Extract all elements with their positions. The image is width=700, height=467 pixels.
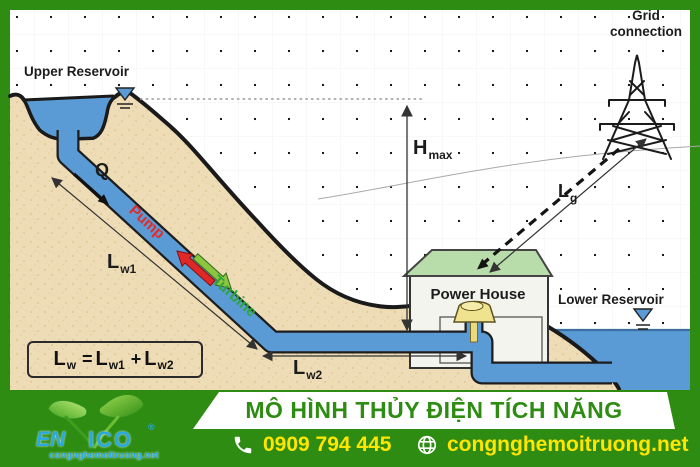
phone-number: 0909 794 445 xyxy=(263,433,391,457)
globe-icon xyxy=(416,434,438,456)
website-url: congnghemoitruong.net xyxy=(447,433,688,457)
upper-reservoir-label: Upper Reservoir xyxy=(24,64,129,80)
website-contact: congnghemoitruong.net xyxy=(416,433,688,457)
hmax-label: Hmax xyxy=(413,137,452,160)
grid-connection-label-line1: Grid xyxy=(596,8,696,24)
banner-title: MÔ HÌNH THỦY ĐIỆN TÍCH NĂNG xyxy=(245,397,622,424)
logo-registered-mark: ® xyxy=(148,422,155,432)
lower-reservoir-label: Lower Reservoir xyxy=(558,292,664,308)
grid-connection-label: Grid connection xyxy=(596,8,696,39)
leaf-icon xyxy=(48,400,87,419)
power-house-label: Power House xyxy=(408,286,548,303)
leaf-icon xyxy=(99,394,144,417)
flow-q-label: Q xyxy=(95,160,109,181)
logo-brand-left: EN xyxy=(36,428,65,452)
title-band: MÔ HÌNH THỦY ĐIỆN TÍCH NĂNG xyxy=(193,392,675,429)
grid-connection-label-line2: connection xyxy=(596,24,696,40)
length-formula-box: Lw = Lw1 + Lw2 xyxy=(27,341,203,378)
infographic: Upper Reservoir Grid connection Power Ho… xyxy=(0,0,700,467)
footer-banner: MÔ HÌNH THỦY ĐIỆN TÍCH NĂNG 0909 794 445… xyxy=(0,390,700,467)
logo-tagline: congnghemoitruong.net xyxy=(26,450,182,461)
lw1-label: Lw1 xyxy=(107,251,136,274)
lw2-label: Lw2 xyxy=(293,357,322,380)
phone-contact: 0909 794 445 xyxy=(232,433,391,457)
phone-icon xyxy=(232,434,254,456)
lg-label: Lg xyxy=(558,181,577,202)
envico-logo: EN ICO ® congnghemoitruong.net xyxy=(26,391,182,465)
